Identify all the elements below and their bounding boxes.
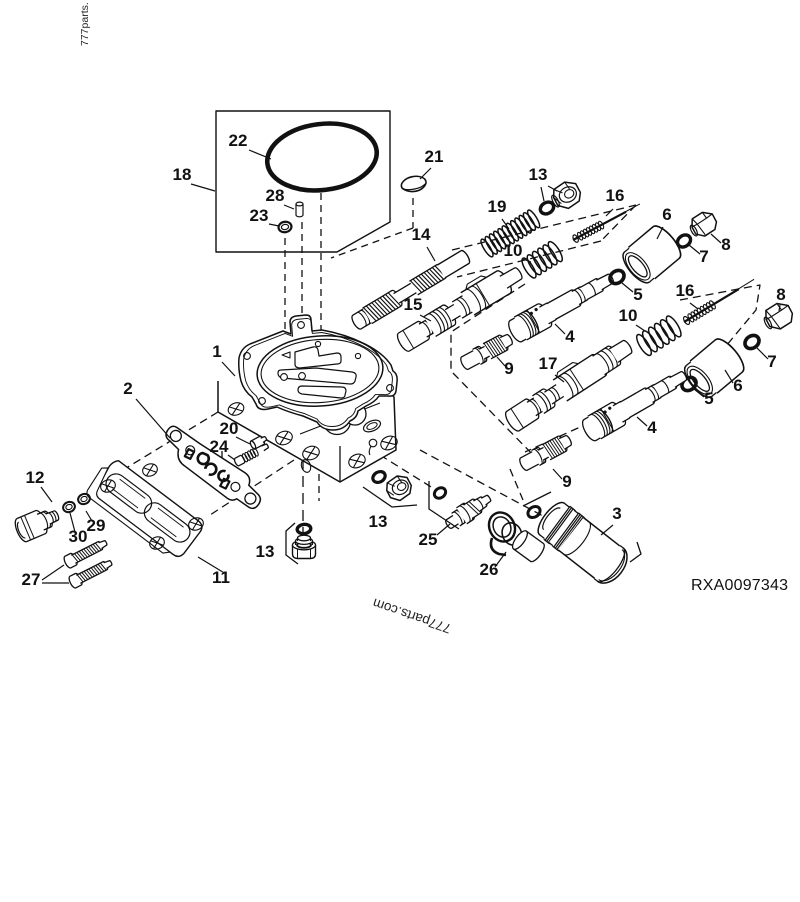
svg-text:8: 8 [776,285,785,304]
svg-text:4: 4 [565,327,575,346]
svg-text:6: 6 [662,205,671,224]
svg-text:14: 14 [412,225,431,244]
svg-text:23: 23 [250,206,269,225]
svg-text:15: 15 [404,295,423,314]
svg-text:13: 13 [256,542,275,561]
svg-text:7: 7 [699,247,708,266]
svg-text:8: 8 [721,235,730,254]
svg-text:25: 25 [419,530,438,549]
svg-text:20: 20 [220,419,239,438]
svg-text:1: 1 [212,342,221,361]
svg-text:RXA0097343: RXA0097343 [691,577,788,594]
svg-text:10: 10 [619,306,638,325]
svg-text:6: 6 [733,376,742,395]
svg-text:26: 26 [480,560,499,579]
svg-text:28: 28 [266,186,285,205]
svg-text:2: 2 [123,379,132,398]
svg-text:27: 27 [22,570,41,589]
svg-text:13: 13 [529,165,548,184]
svg-text:21: 21 [425,147,444,166]
svg-text:29: 29 [87,516,106,535]
svg-text:9: 9 [562,472,571,491]
svg-text:5: 5 [704,389,713,408]
svg-text:13: 13 [369,512,388,531]
svg-text:24: 24 [210,437,229,456]
svg-text:5: 5 [633,285,642,304]
svg-text:17: 17 [539,354,558,373]
svg-text:9: 9 [504,359,513,378]
svg-text:19: 19 [488,197,507,216]
svg-text:12: 12 [26,468,45,487]
svg-text:22: 22 [229,131,248,150]
svg-text:4: 4 [647,418,657,437]
svg-text:777parts.: 777parts. [79,2,91,46]
svg-text:16: 16 [606,186,625,205]
svg-text:7: 7 [767,352,776,371]
svg-text:10: 10 [504,241,523,260]
svg-text:3: 3 [612,504,621,523]
svg-text:16: 16 [676,281,695,300]
svg-text:18: 18 [173,165,192,184]
svg-text:30: 30 [69,527,88,546]
